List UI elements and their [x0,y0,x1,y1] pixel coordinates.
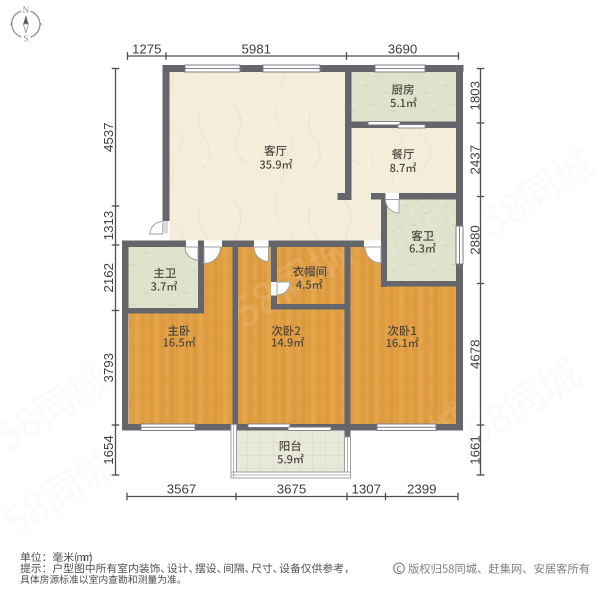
svg-text:4678: 4678 [467,339,482,369]
svg-text:1803: 1803 [467,81,482,111]
svg-text:1313: 1313 [101,211,116,241]
svg-text:3690: 3690 [388,42,418,57]
svg-text:2399: 2399 [407,482,437,497]
svg-text:3567: 3567 [167,482,197,497]
svg-text:1654: 1654 [101,435,116,465]
svg-text:2162: 2162 [101,263,116,293]
svg-text:4537: 4537 [101,122,116,152]
svg-text:3675: 3675 [277,482,307,497]
svg-text:1275: 1275 [132,42,162,57]
svg-text:2880: 2880 [467,225,482,255]
svg-text:S: S [23,33,28,43]
svg-text:2437: 2437 [467,145,482,175]
svg-text:N: N [23,5,30,15]
svg-text:3793: 3793 [101,353,116,383]
svg-text:1661: 1661 [467,435,482,465]
svg-text:5981: 5981 [241,42,271,57]
svg-text:1307: 1307 [351,482,381,497]
